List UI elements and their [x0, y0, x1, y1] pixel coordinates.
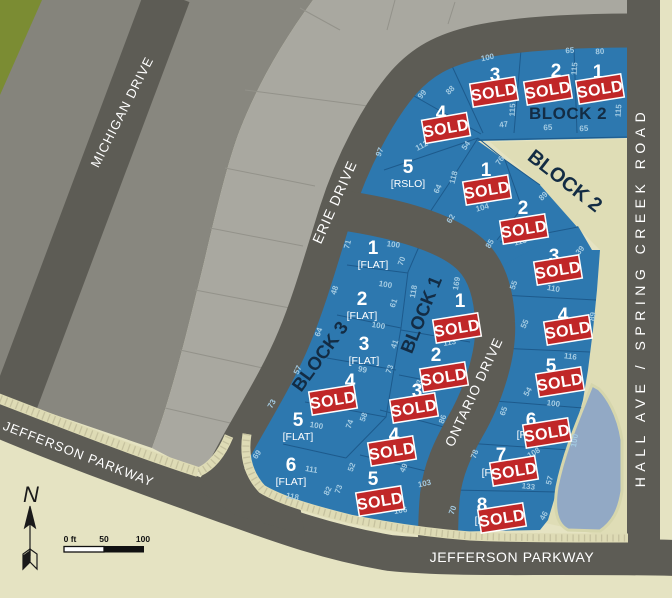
svg-text:HALL AVE / SPRING CREEK ROAD: HALL AVE / SPRING CREEK ROAD [632, 107, 648, 487]
svg-text:47: 47 [499, 119, 510, 129]
svg-text:100: 100 [386, 239, 401, 250]
svg-text:[FLAT]: [FLAT] [283, 431, 314, 443]
svg-text:[RSLO]: [RSLO] [391, 178, 426, 190]
svg-text:1: 1 [455, 291, 466, 312]
svg-text:2: 2 [518, 198, 529, 219]
svg-text:5: 5 [368, 469, 379, 490]
svg-text:6: 6 [286, 455, 297, 476]
svg-text:115: 115 [613, 103, 623, 117]
svg-text:133: 133 [521, 481, 536, 492]
svg-text:[FLAT]: [FLAT] [358, 259, 389, 271]
svg-text:0 ft: 0 ft [64, 534, 77, 544]
svg-text:JEFFERSON PARKWAY: JEFFERSON PARKWAY [430, 549, 595, 565]
svg-text:115: 115 [508, 103, 518, 117]
svg-text:[FLAT]: [FLAT] [349, 355, 380, 367]
svg-text:BLOCK 2: BLOCK 2 [529, 104, 607, 123]
svg-text:80: 80 [595, 47, 605, 56]
svg-text:N: N [23, 482, 39, 507]
svg-text:3: 3 [359, 334, 370, 355]
svg-text:2: 2 [357, 289, 368, 310]
svg-text:116: 116 [563, 351, 578, 362]
svg-text:2: 2 [431, 345, 442, 366]
svg-text:5: 5 [293, 410, 304, 431]
svg-text:50: 50 [99, 534, 109, 544]
svg-text:5: 5 [403, 157, 414, 178]
svg-text:[FLAT]: [FLAT] [347, 310, 378, 322]
svg-text:100: 100 [546, 398, 561, 409]
svg-text:65: 65 [565, 46, 575, 56]
svg-text:65: 65 [579, 124, 589, 133]
svg-text:100: 100 [136, 534, 150, 544]
svg-text:[FLAT]: [FLAT] [276, 476, 307, 488]
svg-text:65: 65 [543, 123, 553, 132]
svg-text:115: 115 [569, 61, 579, 75]
svg-text:1: 1 [368, 238, 379, 259]
